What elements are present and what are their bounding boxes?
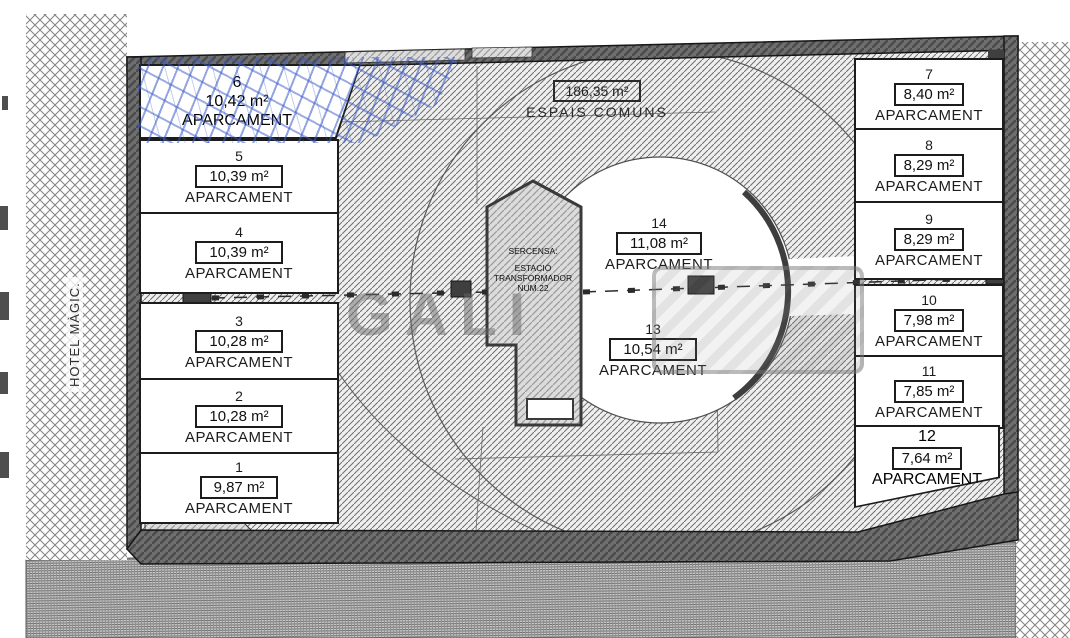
parking-stall-9: 9 8,29 m² APARCAMENT: [854, 201, 1004, 280]
transformer-line: SERCENSA:: [477, 246, 589, 256]
stall-area: 7,98 m²: [894, 309, 965, 332]
stall-label: APARCAMENT: [185, 189, 293, 206]
stall-label: APARCAMENT: [185, 500, 293, 517]
parking-stall-10: 10 7,98 m² APARCAMENT: [854, 284, 1004, 359]
stall-label: APARCAMENT: [185, 354, 293, 371]
parking-stall-11: 11 7,85 m² APARCAMENT: [854, 355, 1004, 429]
stall-area: 10,39 m²: [195, 241, 282, 264]
parking-stall-7: 7 8,40 m² APARCAMENT: [854, 58, 1004, 132]
parking-stall-8: 8 8,29 m² APARCAMENT: [854, 128, 1004, 205]
hotel-magic-label: HOTEL MÀGIC.: [66, 277, 83, 392]
stall-label: APARCAMENT: [599, 362, 707, 379]
stall-number: 1: [235, 460, 243, 475]
stall-label: APARCAMENT: [875, 404, 983, 421]
common-area-value: 186,35 m²: [553, 80, 640, 102]
stall-number: 3: [235, 314, 243, 329]
stall-label: APARCAMENT: [185, 429, 293, 446]
stall-number: 12: [918, 428, 936, 446]
stall-number: 4: [235, 225, 243, 240]
wall-block: [988, 50, 1004, 58]
stall-area: 8,40 m²: [894, 83, 965, 106]
stall-area: 7,64 m²: [892, 447, 963, 470]
stall-number: 2: [235, 389, 243, 404]
stall-label: APARCAMENT: [875, 333, 983, 350]
parking-stall-13: 13 10,54 m² APARCAMENT: [562, 320, 744, 380]
stall-area: 10,28 m²: [195, 405, 282, 428]
transformer-notch: [527, 399, 573, 419]
scan-artifacts: [0, 96, 9, 478]
stall-number: 6: [233, 74, 242, 92]
parking-stall-6: 6 10,42 m² APARCAMENT: [139, 64, 361, 139]
wall-light-segment: [472, 47, 532, 58]
stall-number: 5: [235, 149, 243, 164]
stall-number: 13: [645, 322, 661, 337]
stall-label: APARCAMENT: [182, 112, 292, 130]
parking-stall-4: 4 10,39 m² APARCAMENT: [139, 212, 339, 294]
transformer-line: NUM.22: [477, 283, 589, 293]
parking-stall-3: 3 10,28 m² APARCAMENT: [139, 302, 339, 382]
stall-label: APARCAMENT: [605, 256, 713, 273]
stall-area: 10,28 m²: [195, 330, 282, 353]
stall-label: APARCAMENT: [875, 107, 983, 124]
transformer-label: SERCENSA: ESTACIÓ TRANSFORMADOR NUM.22: [477, 246, 589, 293]
stall-area: 8,29 m²: [894, 154, 965, 177]
stall-number: 14: [651, 216, 667, 231]
common-area-name: ESPAIS COMUNS: [502, 104, 692, 120]
parking-stall-2: 2 10,28 m² APARCAMENT: [139, 378, 339, 456]
stall-number: 10: [921, 293, 937, 308]
stall-area: 11,08 m²: [616, 232, 702, 255]
stall-number: 7: [925, 67, 933, 82]
right-crosshatch-strip: [1016, 42, 1070, 638]
stall-label: APARCAMENT: [185, 265, 293, 282]
stall-area: 10,42 m²: [205, 93, 268, 111]
transformer-line: ESTACIÓ: [477, 263, 589, 273]
floor-plan-scan: 6 10,42 m² APARCAMENT 5 10,39 m² APARCAM…: [0, 0, 1070, 638]
stall-area: 9,87 m²: [200, 476, 279, 499]
parking-stall-14: 14 11,08 m² APARCAMENT: [568, 213, 750, 275]
parking-stall-5: 5 10,39 m² APARCAMENT: [139, 139, 339, 216]
stall-number: 9: [925, 212, 933, 227]
stall-area: 10,54 m²: [609, 338, 696, 361]
stall-area: 7,85 m²: [894, 380, 965, 403]
stall-number: 8: [925, 138, 933, 153]
parking-stall-1: 1 9,87 m² APARCAMENT: [139, 452, 339, 524]
transformer-line: TRANSFORMADOR: [477, 273, 589, 283]
stall-number: 11: [922, 364, 937, 379]
common-area-label: 186,35 m² ESPAIS COMUNS: [502, 80, 692, 120]
stall-area: 10,39 m²: [195, 165, 282, 188]
stall-label: APARCAMENT: [875, 252, 983, 269]
stall-label: APARCAMENT: [875, 178, 983, 195]
stall-area: 8,29 m²: [894, 228, 965, 251]
